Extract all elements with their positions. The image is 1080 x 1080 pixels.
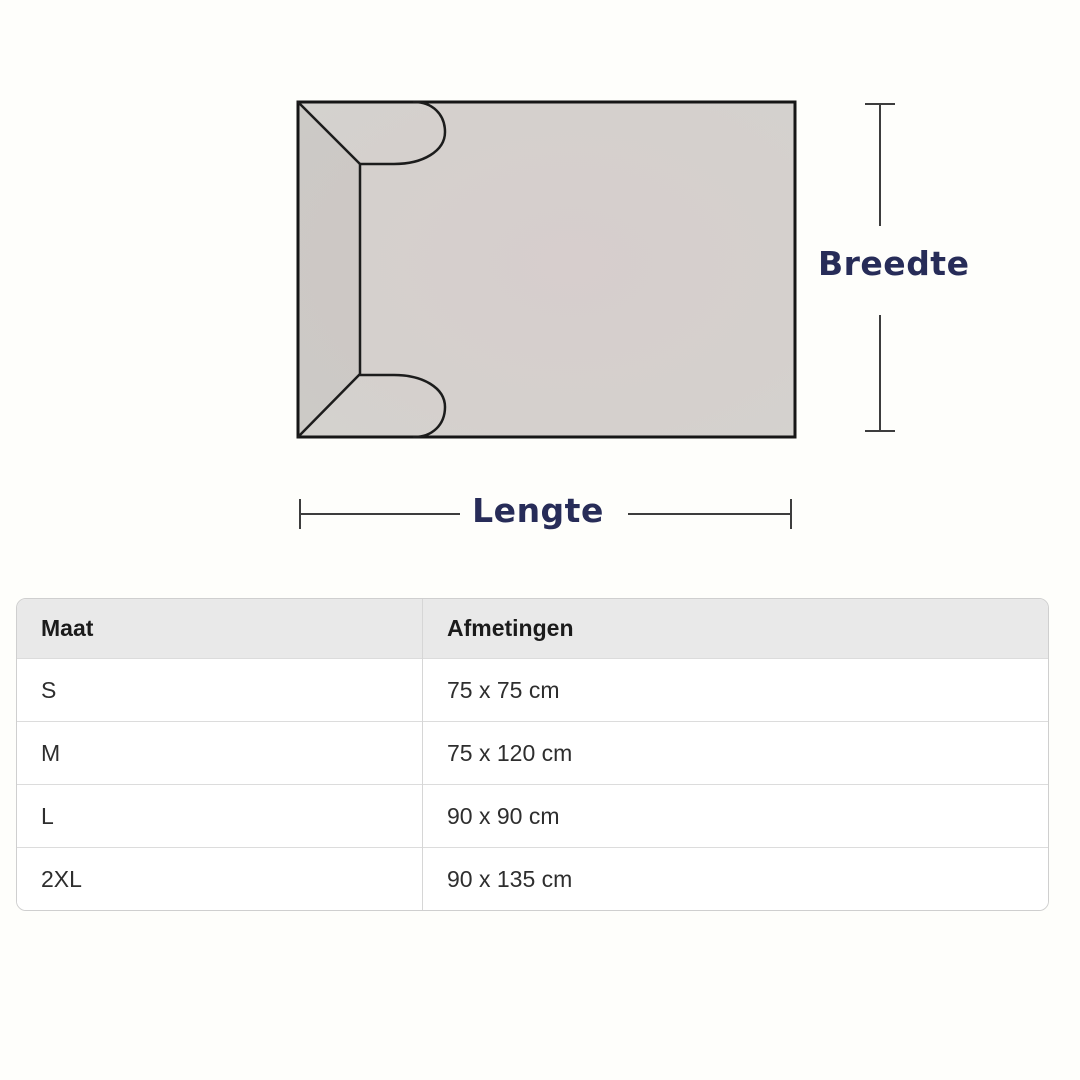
- table-row: M 75 x 120 cm: [17, 722, 1048, 785]
- size-table-container: Maat Afmetingen S 75 x 75 cm M 75 x 120 …: [16, 598, 1049, 911]
- dimension-cell: 90 x 90 cm: [423, 785, 1049, 848]
- table-row: S 75 x 75 cm: [17, 659, 1048, 722]
- product-dimension-diagram: Breedte Lengte: [0, 0, 1080, 580]
- dimension-cell: 75 x 120 cm: [423, 722, 1049, 785]
- size-guide-page: Breedte Lengte Maat Afmetingen S 75 x 75…: [0, 0, 1080, 1080]
- table-row: L 90 x 90 cm: [17, 785, 1048, 848]
- size-table: Maat Afmetingen S 75 x 75 cm M 75 x 120 …: [17, 599, 1048, 910]
- size-cell: L: [17, 785, 423, 848]
- size-cell: S: [17, 659, 423, 722]
- header-afmetingen: Afmetingen: [423, 599, 1049, 659]
- dimension-cell: 75 x 75 cm: [423, 659, 1049, 722]
- header-row: Maat Afmetingen: [17, 599, 1048, 659]
- blanket-outline: [298, 102, 795, 437]
- header-maat: Maat: [17, 599, 423, 659]
- size-table-header: Maat Afmetingen: [17, 599, 1048, 659]
- size-table-body: S 75 x 75 cm M 75 x 120 cm L 90 x 90 cm …: [17, 659, 1048, 911]
- dimension-cell: 90 x 135 cm: [423, 848, 1049, 911]
- width-label: Breedte: [818, 246, 958, 282]
- length-label: Lengte: [468, 493, 608, 529]
- size-cell: M: [17, 722, 423, 785]
- size-cell: 2XL: [17, 848, 423, 911]
- table-row: 2XL 90 x 135 cm: [17, 848, 1048, 911]
